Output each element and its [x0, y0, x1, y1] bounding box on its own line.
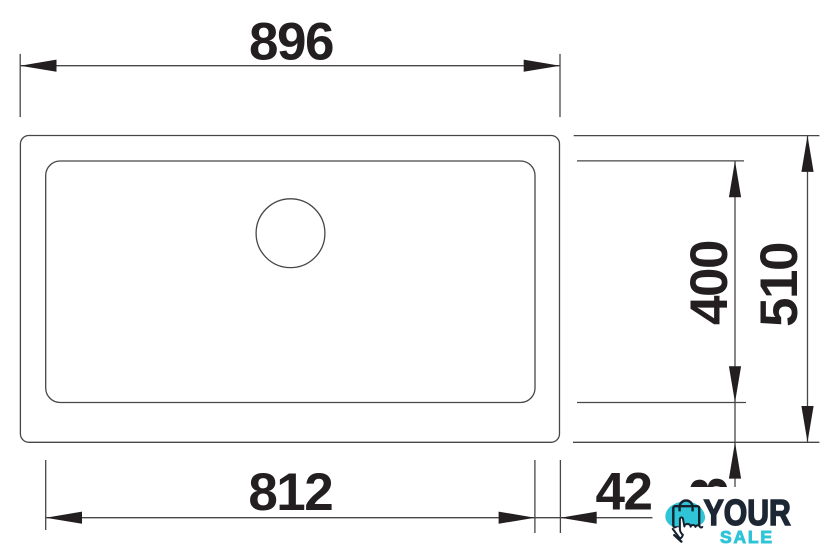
svg-text:400: 400 — [680, 241, 739, 325]
svg-text:896: 896 — [249, 12, 333, 71]
svg-text:510: 510 — [750, 243, 809, 327]
svg-text:42: 42 — [596, 462, 652, 521]
svg-text:812: 812 — [248, 463, 332, 522]
svg-text:SALE: SALE — [720, 527, 772, 547]
